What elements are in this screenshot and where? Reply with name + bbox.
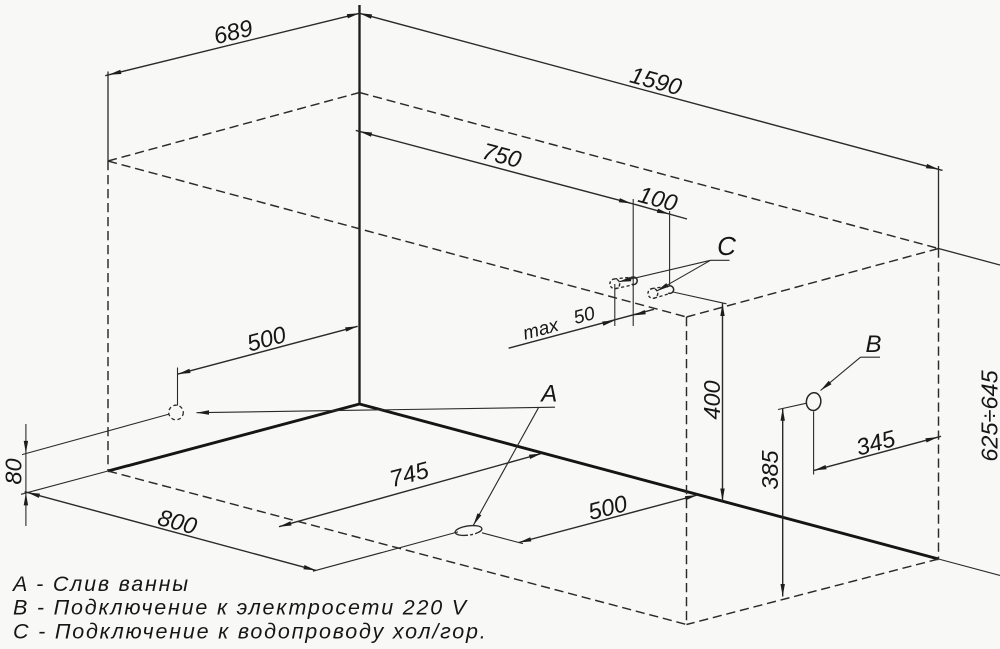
svg-text:385: 385 bbox=[757, 449, 783, 489]
svg-text:A - Слив ванны: A - Слив ванны bbox=[11, 572, 190, 596]
svg-text:C: C bbox=[717, 231, 736, 261]
svg-text:80: 80 bbox=[0, 458, 26, 484]
svg-text:625÷645: 625÷645 bbox=[976, 369, 1000, 461]
svg-text:A: A bbox=[539, 380, 557, 407]
svg-text:B: B bbox=[865, 331, 881, 358]
svg-text:C - Подключение к водопроводу: C - Подключение к водопроводу хол/гор. bbox=[13, 620, 488, 644]
svg-text:400: 400 bbox=[699, 380, 725, 419]
svg-text:B - Подключение к электросети: B - Подключение к электросети 220 V bbox=[13, 596, 469, 620]
